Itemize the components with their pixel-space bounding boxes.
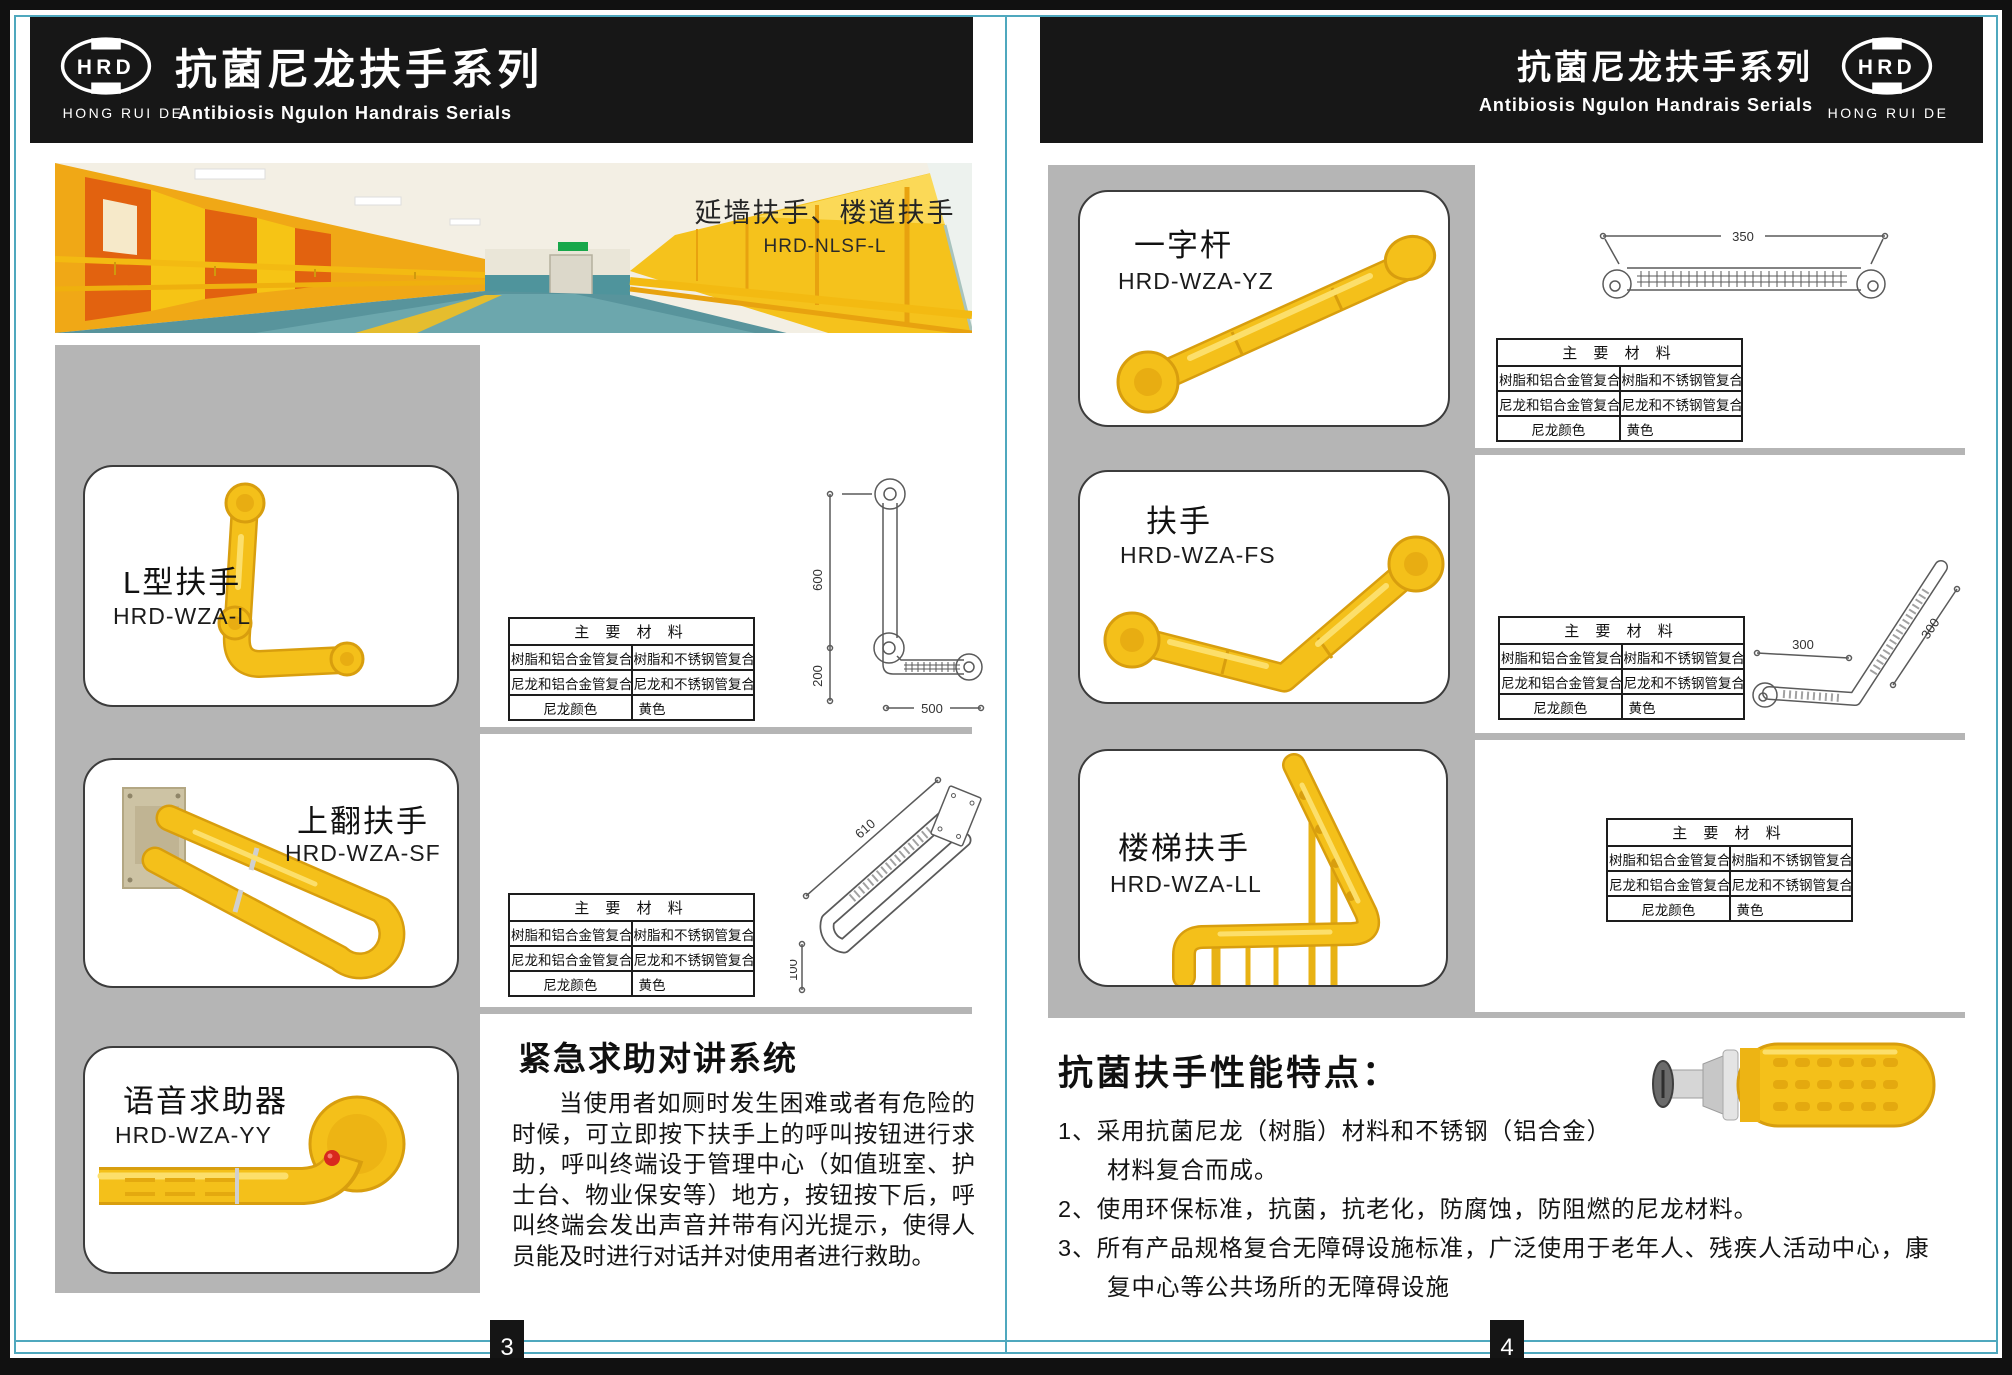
logo-text: HRD [1858,56,1916,79]
product-name: L型扶手 [123,557,241,602]
guide-center [1005,15,1007,1354]
materials-cell: 树脂和铝合金管复合 [1499,644,1622,669]
materials-header: 主 要 材 料 [1497,339,1742,366]
handrail-photo [1080,472,1448,702]
materials-cell: 树脂和铝合金管复合 [1607,846,1730,871]
l-handrail-drawing: 600 200 500 [772,468,990,726]
materials-cell: 尼龙和不锈钢管复合 [1730,871,1853,896]
frame-bottom [0,1358,2012,1375]
banner-model: HRD-NLSF-L [680,236,970,258]
flipup-handrail-photo [85,760,457,986]
hrd-logo-icon: HRD [58,33,154,99]
product-name: 一字杆 [1134,220,1233,265]
dim-label: 300 [1918,615,1943,641]
materials-cell: 树脂和铝合金管复合 [1497,366,1620,391]
product-name: 楼梯扶手 [1118,823,1250,868]
materials-cell: 树脂和不锈钢管复合 [1730,846,1853,871]
catalog-spread: HRD HONG RUI DE 抗菌尼龙扶手系列 Antibiosis Ngul… [0,0,2012,1375]
features-list: 1、采用抗菌尼龙（树脂）材料和不锈钢（铝合金） 材料复合而成。 2、使用环保标准… [1058,1112,1958,1307]
emergency-body: 当使用者如厕时发生困难或者有危险的时候，可立即按下扶手上的呼叫按钮进行求助，呼叫… [512,1088,975,1271]
materials-header: 主 要 材 料 [1499,617,1744,644]
feature-item-line: 3、所有产品规格复合无障碍设施标准，广泛使用于老年人、残疾人活动中心，康 [1058,1229,1958,1268]
stair-handrail-photo [1080,751,1446,985]
emergency-title: 紧急求助对讲系统 [518,1032,798,1080]
materials-table-straight-bar: 主 要 材 料 树脂和铝合金管复合树脂和不锈钢管复合 尼龙和铝合金管复合尼龙和不… [1496,338,1743,442]
materials-cell: 尼龙颜色 [1499,694,1622,719]
materials-cell: 尼龙和不锈钢管复合 [1622,669,1745,694]
materials-cell: 尼龙颜色 [1497,416,1620,441]
materials-cell: 尼龙和不锈钢管复合 [632,946,755,971]
dim-label: 100 [790,959,800,981]
materials-cell: 黄色 [1622,694,1745,719]
right-page-title: 抗菌尼龙扶手系列 [1517,51,1813,85]
materials-cell: 树脂和不锈钢管复合 [632,645,755,670]
materials-cell: 尼龙和铝合金管复合 [509,670,632,695]
materials-cell: 尼龙颜色 [1607,896,1730,921]
feature-item-line: 复中心等公共场所的无障碍设施 [1058,1268,1958,1307]
logo-text: HRD [77,56,135,79]
flipup-handrail-drawing: 610 100 [790,752,990,1004]
product-model: HRD-WZA-L [113,603,251,630]
row-divider [55,727,972,734]
features-title: 抗菌扶手性能特点： [1058,1045,1400,1096]
left-page-title: 抗菌尼龙扶手系列 [175,49,543,91]
banner-caption: 延墙扶手、楼道扶手 [680,191,970,230]
product-card-flipup-handrail: 上翻扶手 HRD-WZA-SF [83,758,459,988]
materials-table-stair: 主 要 材 料 树脂和铝合金管复合树脂和不锈钢管复合 尼龙和铝合金管复合尼龙和不… [1606,818,1853,922]
product-model: HRD-WZA-YZ [1118,268,1274,295]
product-name: 语音求助器 [123,1076,288,1121]
product-name: 上翻扶手 [297,796,429,841]
guide-right [1996,15,1998,1354]
materials-header: 主 要 材 料 [1607,819,1852,846]
corridor-photo: 延墙扶手、楼道扶手 HRD-NLSF-L [55,163,972,333]
product-card-voice-caller: 语音求助器 HRD-WZA-YY [83,1046,459,1274]
product-model: HRD-WZA-LL [1110,871,1262,898]
product-name: 扶手 [1146,496,1212,541]
dim-label: 610 [852,816,878,842]
grip-detail-photo [1645,1032,1940,1137]
guide-bottom-1 [14,1340,1998,1342]
frame-right [2002,0,2012,1375]
guide-bottom-2 [14,1352,1998,1354]
product-card-stair-handrail: 楼梯扶手 HRD-WZA-LL [1078,749,1448,987]
feature-item-line: 2、使用环保标准，抗菌，抗老化，防腐蚀，防阻燃的尼龙材料。 [1058,1190,1958,1229]
materials-cell: 尼龙颜色 [509,971,632,996]
product-card-handrail: 扶手 HRD-WZA-FS [1078,470,1450,704]
materials-cell: 尼龙和铝合金管复合 [1497,391,1620,416]
dim-label: 600 [810,569,825,591]
materials-cell: 尼龙颜色 [509,695,632,720]
materials-header: 主 要 材 料 [509,618,754,645]
product-model: HRD-WZA-FS [1120,542,1276,569]
materials-cell: 尼龙和铝合金管复合 [1499,669,1622,694]
materials-cell: 尼龙和不锈钢管复合 [632,670,755,695]
frame-left [0,0,10,1375]
materials-cell: 尼龙和铝合金管复合 [1607,871,1730,896]
logo-subtext: HONG RUI DE [58,105,188,121]
right-page-subtitle: Antibiosis Ngulon Handrais Serials [1479,95,1813,116]
materials-cell: 尼龙和铝合金管复合 [509,946,632,971]
logo-subtext: HONG RUI DE [1823,105,1953,121]
dim-label: 350 [1732,229,1754,244]
materials-cell: 黄色 [1730,896,1853,921]
row-divider [1048,448,1965,455]
row-divider [1048,1012,1965,1018]
dim-label: 500 [921,701,943,716]
materials-cell: 树脂和不锈钢管复合 [1620,366,1743,391]
left-header: HRD HONG RUI DE 抗菌尼龙扶手系列 Antibiosis Ngul… [30,17,973,143]
product-card-l-handrail: L型扶手 HRD-WZA-L [83,465,459,707]
materials-cell: 黄色 [632,695,755,720]
materials-cell: 树脂和铝合金管复合 [509,645,632,670]
dim-label: 300 [1792,637,1814,652]
left-page-subtitle: Antibiosis Ngulon Handrais Serials [178,103,512,124]
materials-header: 主 要 材 料 [509,894,754,921]
materials-table-l: 主 要 材 料 树脂和铝合金管复合树脂和不锈钢管复合 尼龙和铝合金管复合尼龙和不… [508,617,755,721]
materials-cell: 尼龙和不锈钢管复合 [1620,391,1743,416]
materials-table-handrail: 主 要 材 料 树脂和铝合金管复合树脂和不锈钢管复合 尼龙和铝合金管复合尼龙和不… [1498,616,1745,720]
guide-left [14,15,16,1354]
hrd-logo-icon: HRD [1839,33,1935,99]
materials-table-flipup: 主 要 材 料 树脂和铝合金管复合树脂和不锈钢管复合 尼龙和铝合金管复合尼龙和不… [508,893,755,997]
materials-cell: 树脂和不锈钢管复合 [632,921,755,946]
banner-caption-group: 延墙扶手、楼道扶手 HRD-NLSF-L [680,191,970,258]
handrail-drawing: 300 300 [1745,545,1963,725]
straight-bar-drawing: 350 [1575,218,1910,318]
frame-top [0,0,2012,10]
product-model: HRD-WZA-SF [285,840,441,867]
materials-cell: 树脂和不锈钢管复合 [1622,644,1745,669]
materials-cell: 黄色 [632,971,755,996]
materials-cell: 树脂和铝合金管复合 [509,921,632,946]
product-card-straight-bar: 一字杆 HRD-WZA-YZ [1078,190,1450,427]
product-model: HRD-WZA-YY [115,1122,272,1149]
feature-item-line: 材料复合而成。 [1058,1151,1958,1190]
dim-label: 200 [810,665,825,687]
row-divider [1048,733,1965,740]
materials-cell: 黄色 [1620,416,1743,441]
right-header: 抗菌尼龙扶手系列 Antibiosis Ngulon Handrais Seri… [1040,17,1983,143]
